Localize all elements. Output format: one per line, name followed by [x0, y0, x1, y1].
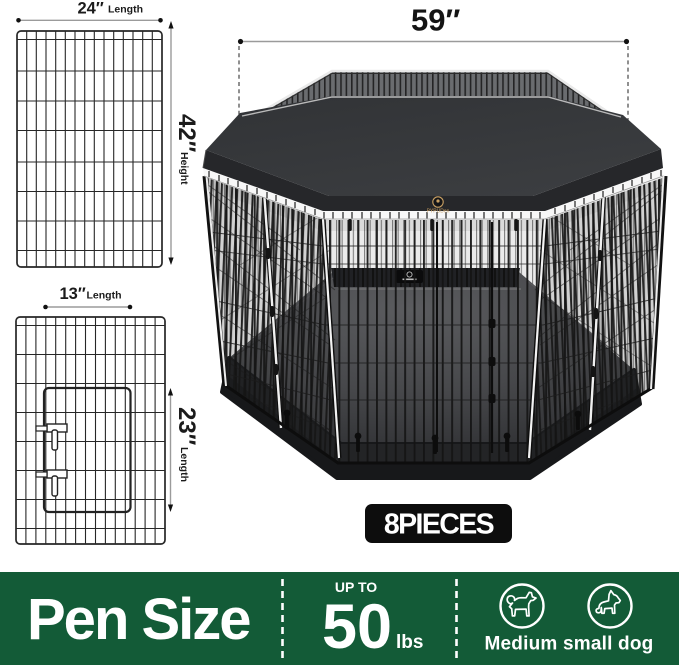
- svg-text:Medium small dog: Medium small dog: [485, 634, 654, 655]
- svg-text:24″: 24″: [78, 0, 104, 17]
- svg-text:13″: 13″: [60, 285, 86, 303]
- svg-text:Length: Length: [108, 4, 143, 16]
- svg-text:Length: Length: [87, 290, 122, 302]
- svg-text:42″: 42″: [173, 114, 200, 153]
- svg-text:Pen Size: Pen Size: [27, 587, 250, 652]
- svg-text:23″: 23″: [173, 407, 200, 446]
- svg-text:Length: Length: [178, 447, 190, 482]
- svg-text:59″: 59″: [411, 3, 460, 38]
- svg-text:8PIECES: 8PIECES: [384, 509, 494, 541]
- svg-text:Height: Height: [178, 152, 190, 185]
- svg-text:lbs: lbs: [396, 632, 423, 653]
- svg-text:PYPUDen: PYPUDen: [427, 209, 450, 215]
- svg-text:50: 50: [322, 592, 392, 662]
